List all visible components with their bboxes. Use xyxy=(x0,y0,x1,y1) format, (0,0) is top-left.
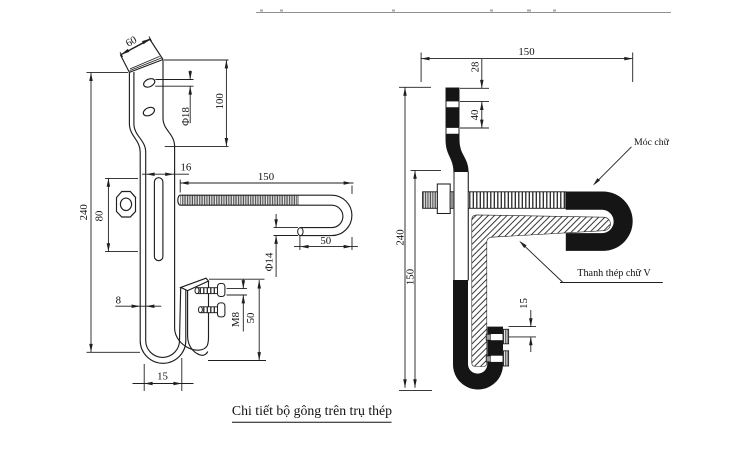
svg-text:100: 100 xyxy=(214,93,226,109)
svg-text:50: 50 xyxy=(320,235,331,247)
svg-text:50: 50 xyxy=(245,313,257,324)
svg-text:8: 8 xyxy=(116,294,121,306)
svg-text:150: 150 xyxy=(518,46,534,58)
svg-text:15: 15 xyxy=(157,370,168,382)
svg-text:80: 80 xyxy=(93,211,105,222)
svg-text:150: 150 xyxy=(258,171,274,183)
svg-text:Thanh thép chữ V: Thanh thép chữ V xyxy=(577,268,651,279)
svg-text:Móc chữ: Móc chữ xyxy=(634,137,670,148)
svg-text:Chi tiết bộ gông trên trụ thép: Chi tiết bộ gông trên trụ thép xyxy=(232,403,392,418)
svg-text:Φ14: Φ14 xyxy=(263,252,275,271)
svg-text:240: 240 xyxy=(394,229,406,245)
svg-text:150: 150 xyxy=(404,269,416,285)
svg-text:15: 15 xyxy=(518,298,530,309)
svg-text:M8: M8 xyxy=(230,312,242,327)
svg-text:28: 28 xyxy=(469,62,481,73)
svg-text:40: 40 xyxy=(469,110,481,121)
svg-text:Φ18: Φ18 xyxy=(180,107,192,126)
svg-text:16: 16 xyxy=(181,161,192,173)
svg-text:240: 240 xyxy=(78,204,90,220)
